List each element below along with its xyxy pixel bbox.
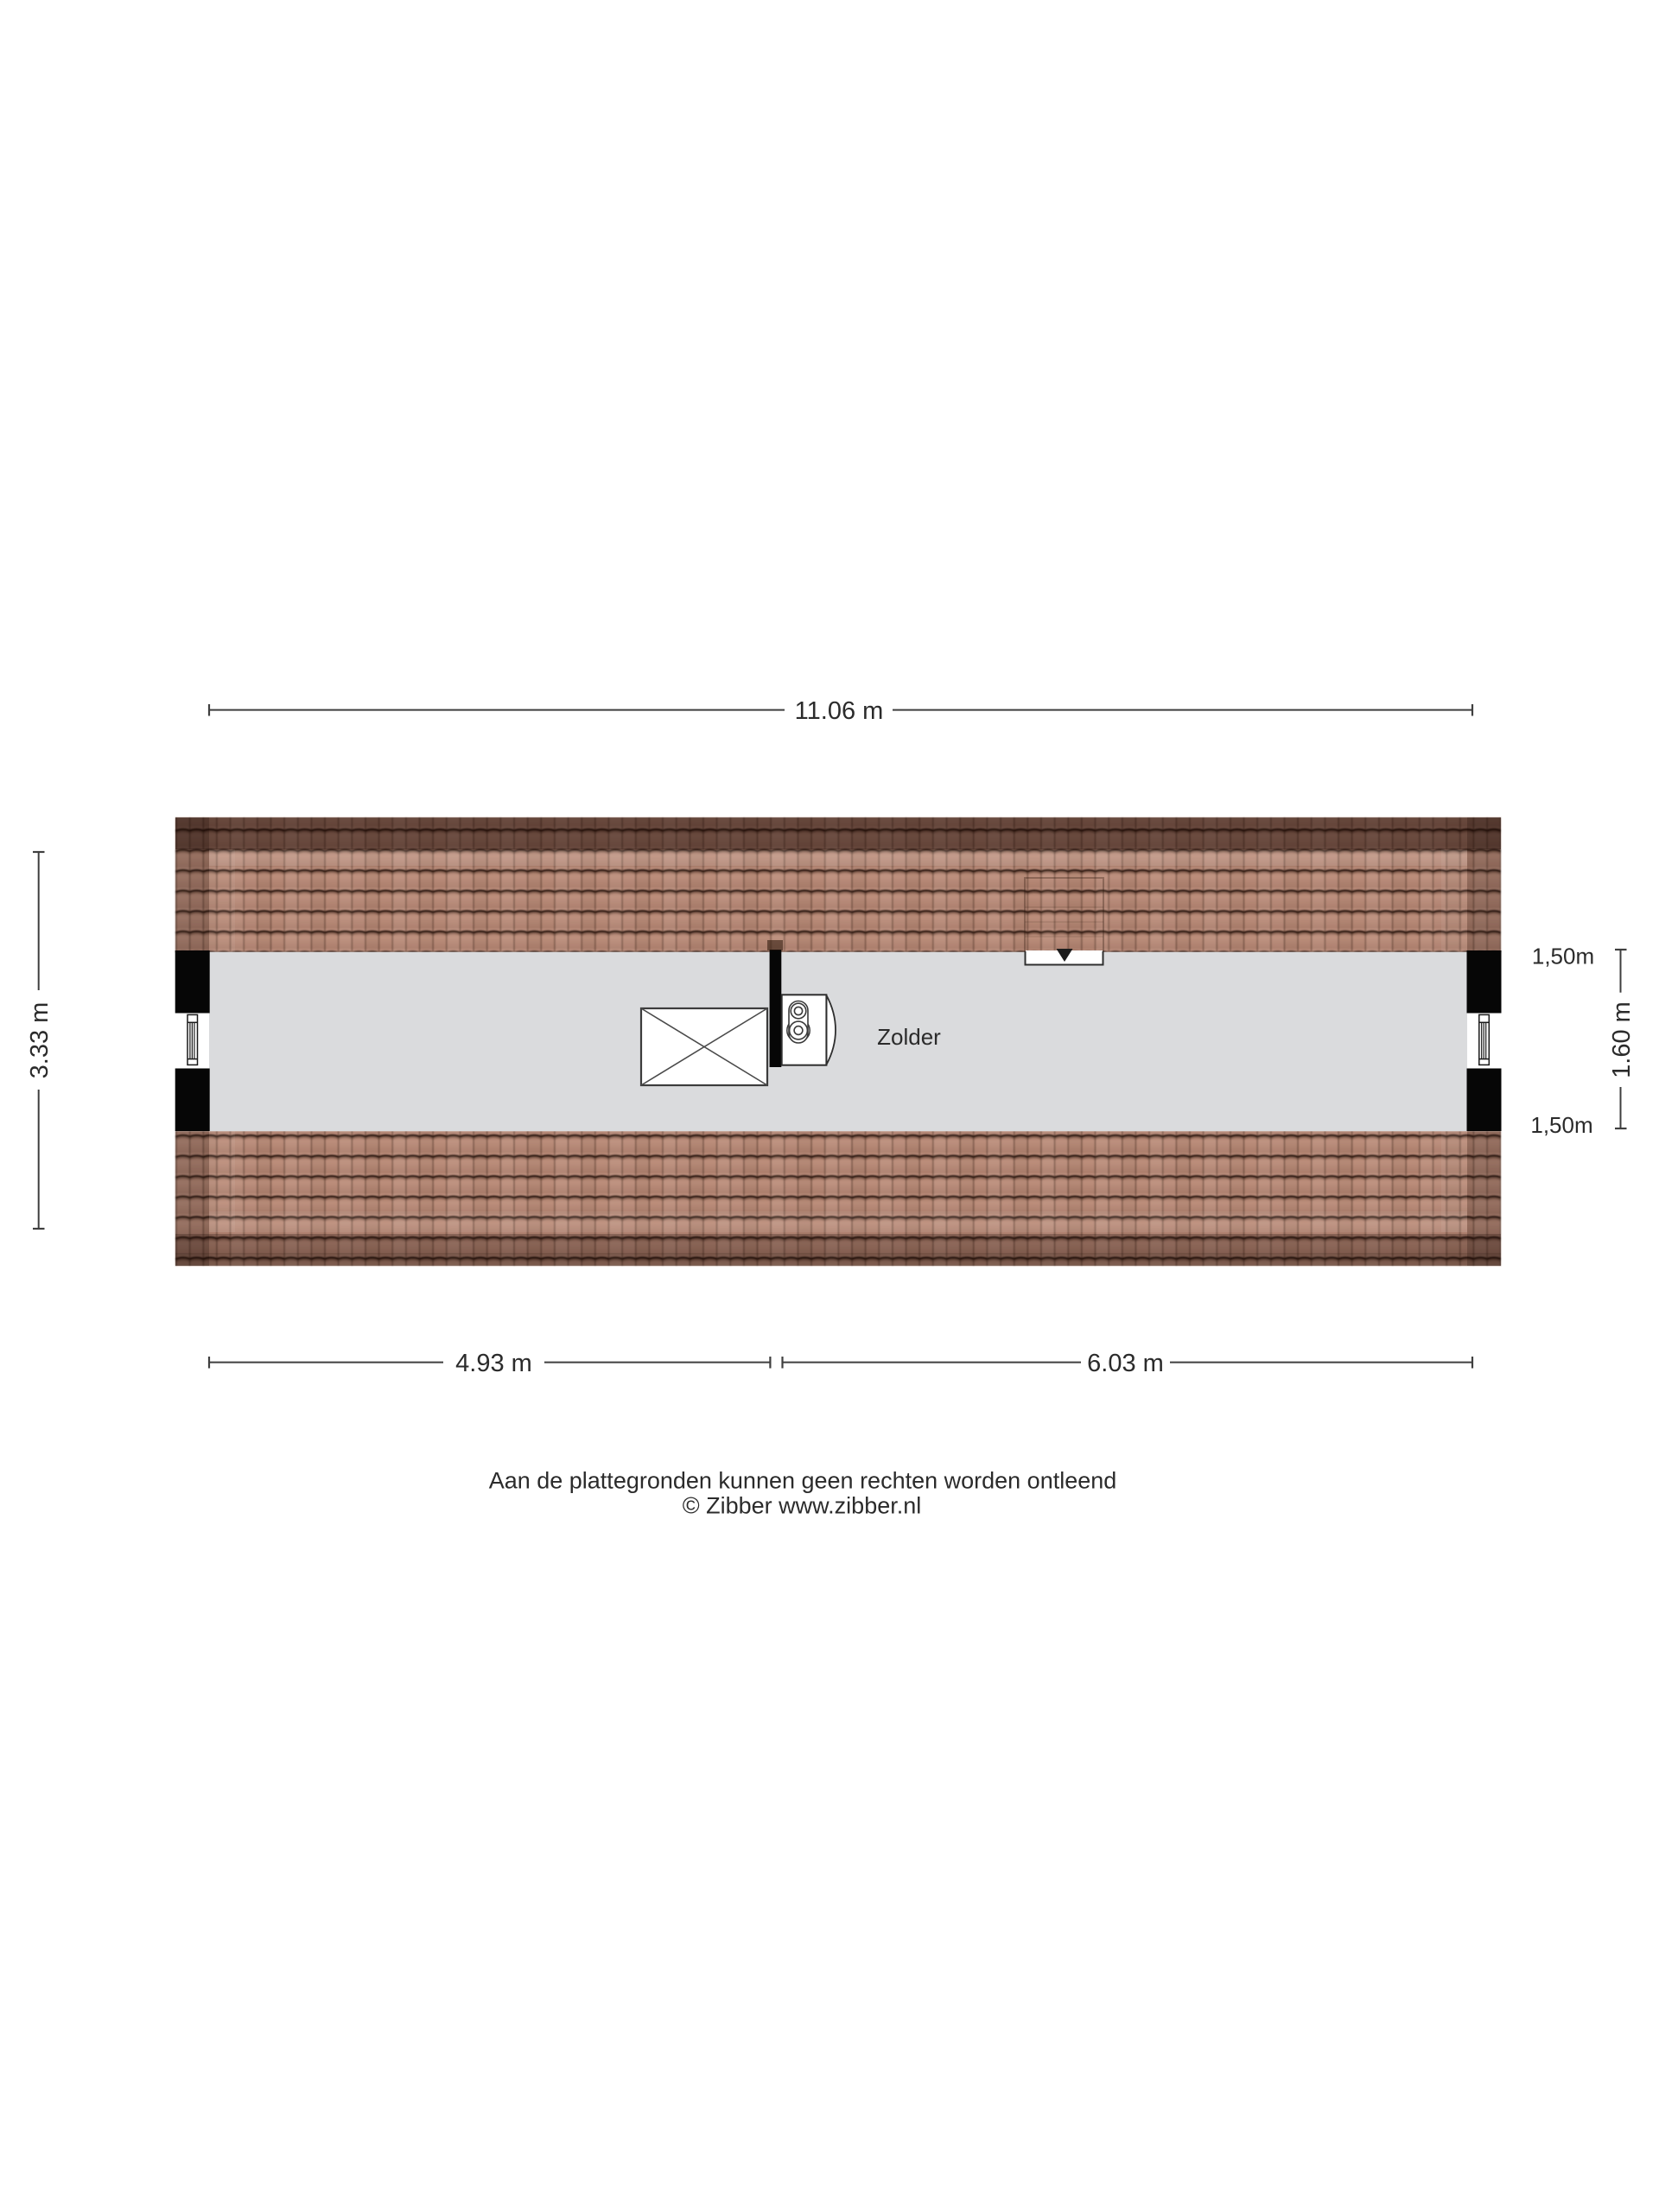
svg-text:1,50m: 1,50m	[1530, 1112, 1592, 1138]
svg-text:4.93 m: 4.93 m	[455, 1350, 532, 1377]
svg-text:1,50m: 1,50m	[1532, 944, 1594, 969]
svg-text:6.03 m: 6.03 m	[1087, 1350, 1164, 1377]
svg-text:Zolder: Zolder	[877, 1024, 941, 1050]
svg-text:1.60 m: 1.60 m	[1608, 1001, 1636, 1078]
svg-text:Aan de plattegronden kunnen ge: Aan de plattegronden kunnen geen rechten…	[489, 1467, 1117, 1493]
svg-text:© Zibber www.zibber.nl: © Zibber www.zibber.nl	[683, 1493, 922, 1519]
svg-text:11.06 m: 11.06 m	[795, 697, 884, 725]
svg-text:3.33 m: 3.33 m	[26, 1002, 54, 1079]
